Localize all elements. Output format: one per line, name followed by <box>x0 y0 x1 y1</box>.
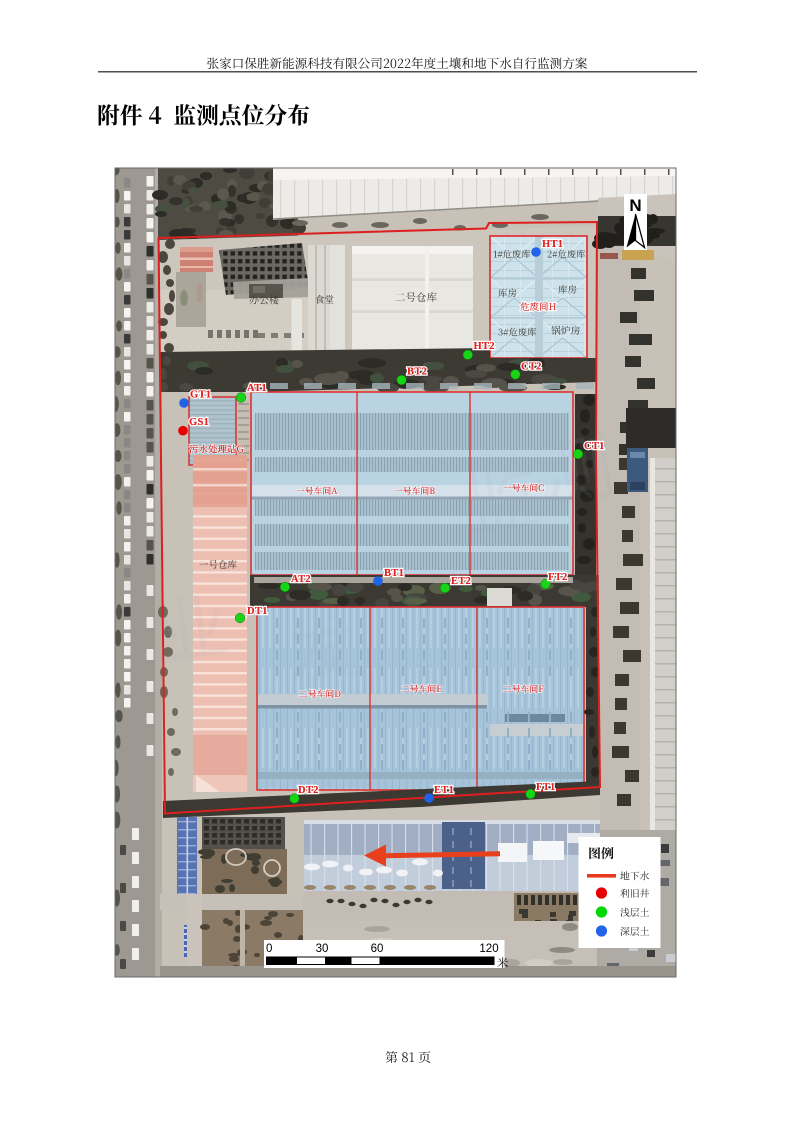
svg-text:120: 120 <box>479 943 498 955</box>
svg-text:DT1: DT1 <box>247 606 268 617</box>
svg-text:0: 0 <box>266 943 272 955</box>
svg-text:FT1: FT1 <box>536 782 556 793</box>
svg-text:FT2: FT2 <box>548 572 568 583</box>
svg-text:AT1: AT1 <box>247 383 267 394</box>
svg-text:ET2: ET2 <box>451 576 471 587</box>
svg-text:AT2: AT2 <box>291 574 311 585</box>
svg-text:60: 60 <box>371 943 384 955</box>
svg-text:BT2: BT2 <box>407 367 427 378</box>
svg-text:GS1: GS1 <box>189 417 209 428</box>
svg-text:BT1: BT1 <box>384 568 404 579</box>
svg-text:30: 30 <box>316 943 329 955</box>
svg-text:CT1: CT1 <box>584 441 605 452</box>
svg-text:HT2: HT2 <box>474 341 495 352</box>
svg-text:GT1: GT1 <box>190 390 211 401</box>
svg-text:HT1: HT1 <box>542 239 563 250</box>
svg-text:CT2: CT2 <box>521 362 542 373</box>
svg-text:N: N <box>629 196 641 215</box>
svg-text:ET1: ET1 <box>434 785 454 796</box>
svg-text:DT2: DT2 <box>298 785 319 796</box>
